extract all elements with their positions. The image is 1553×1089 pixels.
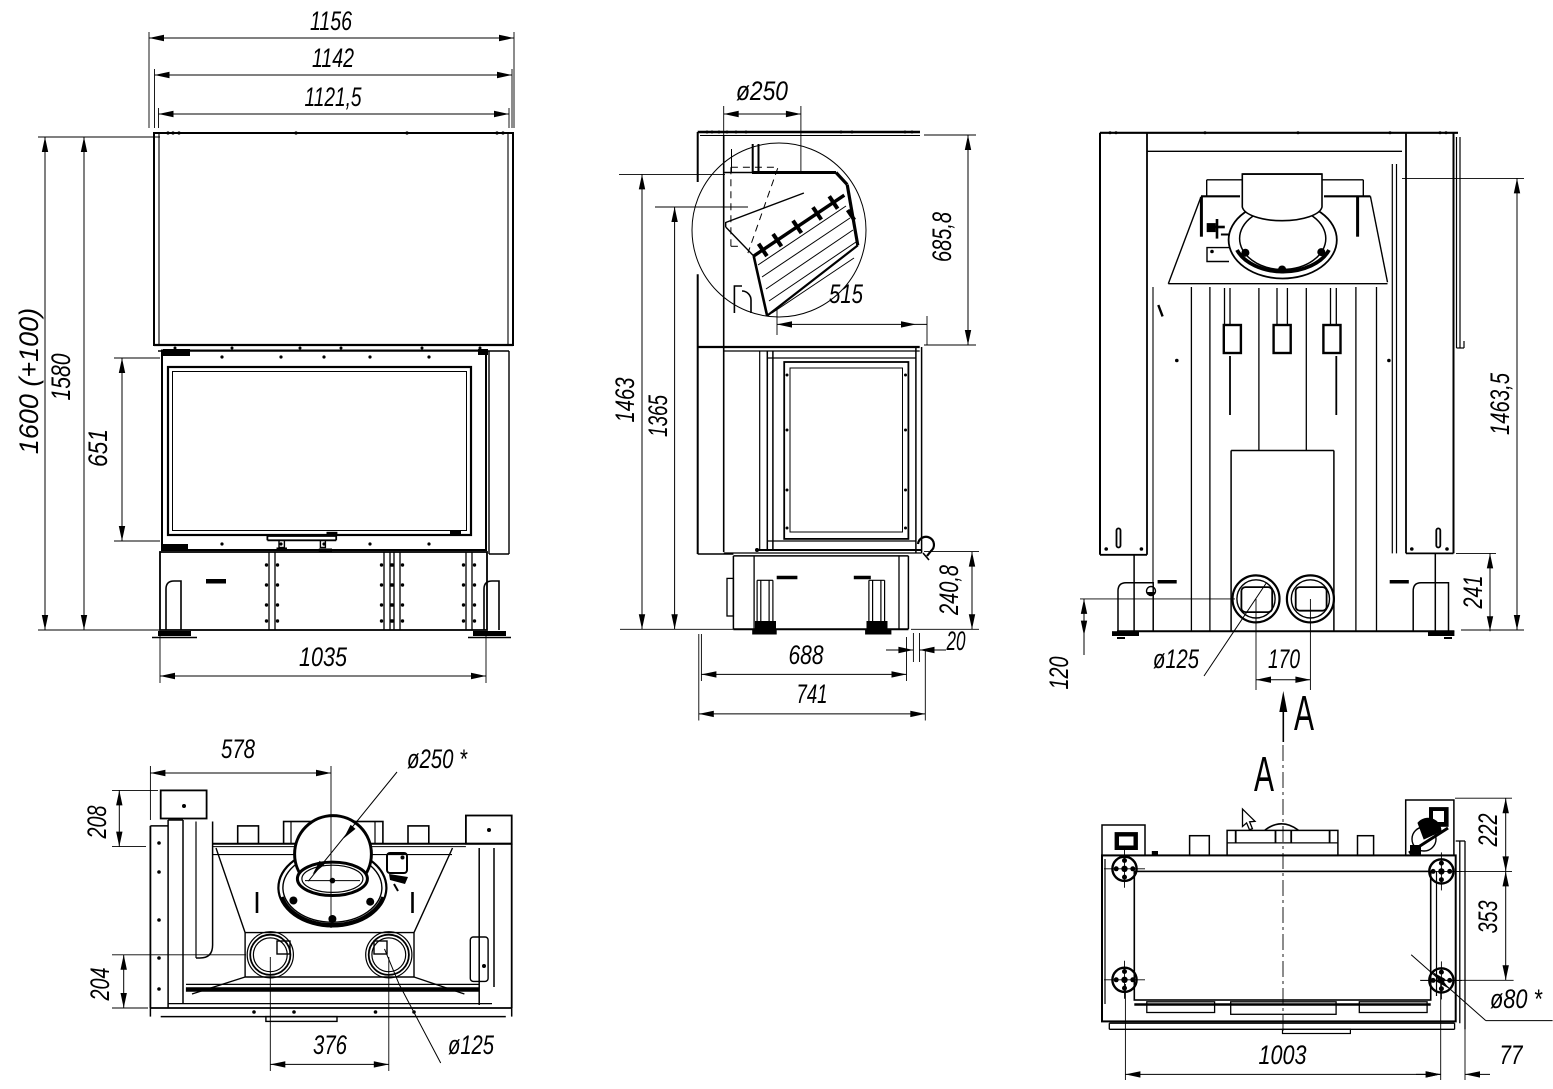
- svg-text:204: 204: [85, 968, 115, 1002]
- svg-text:208: 208: [82, 806, 112, 840]
- svg-text:515: 515: [829, 279, 864, 309]
- svg-text:1121,5: 1121,5: [305, 82, 363, 112]
- svg-text:651: 651: [83, 429, 113, 467]
- svg-text:1156: 1156: [310, 6, 353, 36]
- svg-text:1365: 1365: [643, 394, 673, 437]
- svg-text:170: 170: [1268, 644, 1300, 674]
- svg-text:241: 241: [1458, 576, 1488, 610]
- svg-text:685,8: 685,8: [927, 212, 957, 262]
- svg-text:ø250 *: ø250 *: [407, 744, 468, 774]
- svg-text:376: 376: [313, 1030, 348, 1060]
- svg-text:1035: 1035: [299, 642, 348, 672]
- svg-text:A: A: [1294, 687, 1314, 741]
- svg-text:1003: 1003: [1259, 1040, 1307, 1070]
- svg-text:222: 222: [1473, 814, 1503, 848]
- svg-text:ø250: ø250: [736, 76, 788, 106]
- svg-text:A: A: [1254, 748, 1274, 802]
- svg-text:688: 688: [789, 640, 824, 670]
- svg-text:20: 20: [946, 626, 966, 656]
- svg-text:240,8: 240,8: [934, 565, 964, 616]
- svg-text:1142: 1142: [312, 43, 354, 73]
- svg-text:ø125: ø125: [448, 1030, 495, 1060]
- svg-text:1463,5: 1463,5: [1485, 372, 1515, 435]
- svg-text:1463: 1463: [610, 378, 640, 423]
- svg-text:578: 578: [221, 734, 255, 764]
- svg-text:ø125: ø125: [1153, 644, 1200, 674]
- svg-text:1580: 1580: [46, 354, 76, 401]
- svg-text:ø80 *: ø80 *: [1490, 984, 1543, 1014]
- svg-text:353: 353: [1473, 901, 1503, 934]
- svg-text:120: 120: [1044, 657, 1074, 690]
- svg-text:1600 (+100): 1600 (+100): [14, 308, 44, 454]
- svg-text:77: 77: [1500, 1040, 1524, 1070]
- svg-text:741: 741: [797, 679, 828, 709]
